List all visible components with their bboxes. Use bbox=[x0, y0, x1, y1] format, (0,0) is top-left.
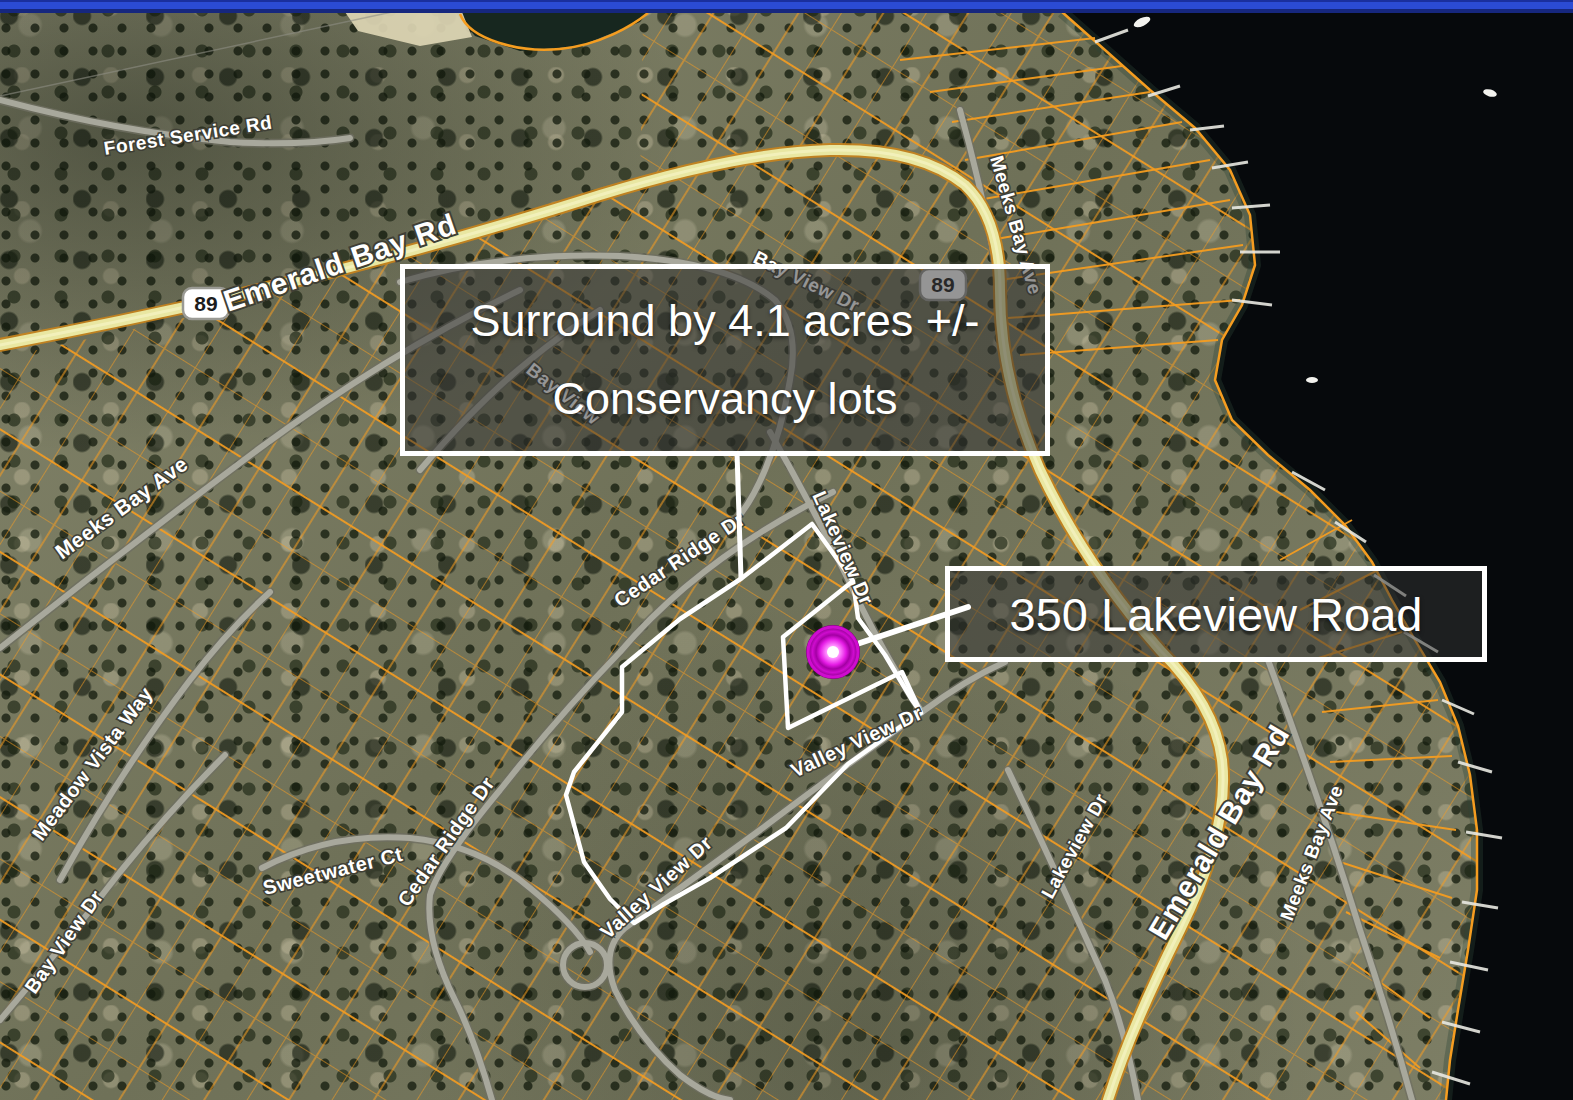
address-callout: 350 Lakeview Road bbox=[945, 566, 1487, 662]
conservancy-callout-line1: Surround by 4.1 acres +/- bbox=[470, 295, 979, 347]
conservancy-callout-line2: Conservancy lots bbox=[552, 373, 897, 425]
utility-line bbox=[0, 6, 420, 96]
beach bbox=[345, 12, 472, 46]
top-blue-bar bbox=[0, 0, 1573, 13]
conservancy-callout: Surround by 4.1 acres +/- Conservancy lo… bbox=[400, 264, 1050, 456]
map-canvas: 89 89 Forest Service Rd Emerald Bay Rd B… bbox=[0, 0, 1573, 1100]
road-label-forest-service-rd: Forest Service Rd bbox=[102, 112, 273, 159]
listing-map-slide: 89 89 Forest Service Rd Emerald Bay Rd B… bbox=[0, 0, 1573, 1100]
route-shield-number: 89 bbox=[194, 292, 217, 315]
address-callout-label: 350 Lakeview Road bbox=[1010, 587, 1423, 642]
